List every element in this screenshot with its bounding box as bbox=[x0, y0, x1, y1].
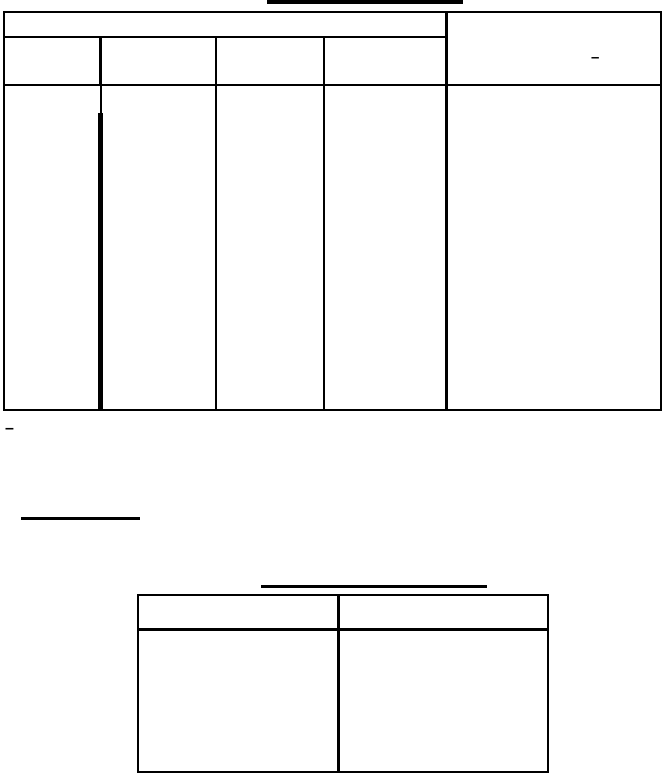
main-table-body-cell-5 bbox=[448, 86, 660, 409]
main-table-body-cell-1 bbox=[5, 86, 98, 409]
secondary-table-body-cell-2 bbox=[340, 631, 547, 771]
secondary-table bbox=[137, 594, 549, 773]
secondary-table-body-cell-1 bbox=[139, 631, 337, 771]
secondary-table-title-underline bbox=[261, 585, 487, 588]
main-table-col1-divider-thin bbox=[100, 86, 102, 113]
main-table-body-cell-2 bbox=[103, 86, 215, 409]
blank-heading-underline bbox=[21, 517, 140, 520]
main-table: – bbox=[3, 11, 662, 411]
main-table-span-header-cell bbox=[5, 13, 445, 36]
blank-underlined-heading bbox=[21, 500, 140, 516]
main-table-header-cell-2 bbox=[102, 38, 215, 84]
secondary-table-header-cell-1 bbox=[139, 596, 337, 628]
main-table-header-cell-1 bbox=[5, 38, 99, 84]
main-table-header-cell-4 bbox=[325, 38, 445, 84]
right-header-cell-dash: – bbox=[591, 50, 599, 65]
main-table-body-cell-3 bbox=[217, 86, 323, 409]
after-table-dash: – bbox=[5, 421, 14, 437]
secondary-table-header-cell-2 bbox=[340, 596, 547, 628]
page-title-underline bbox=[267, 0, 463, 4]
document-page: { "page": { "background_color": "#ffffff… bbox=[0, 0, 664, 776]
main-table-body-cell-4 bbox=[325, 86, 445, 409]
main-table-right-header-cell: – bbox=[448, 13, 660, 84]
main-table-header-cell-3 bbox=[217, 38, 323, 84]
